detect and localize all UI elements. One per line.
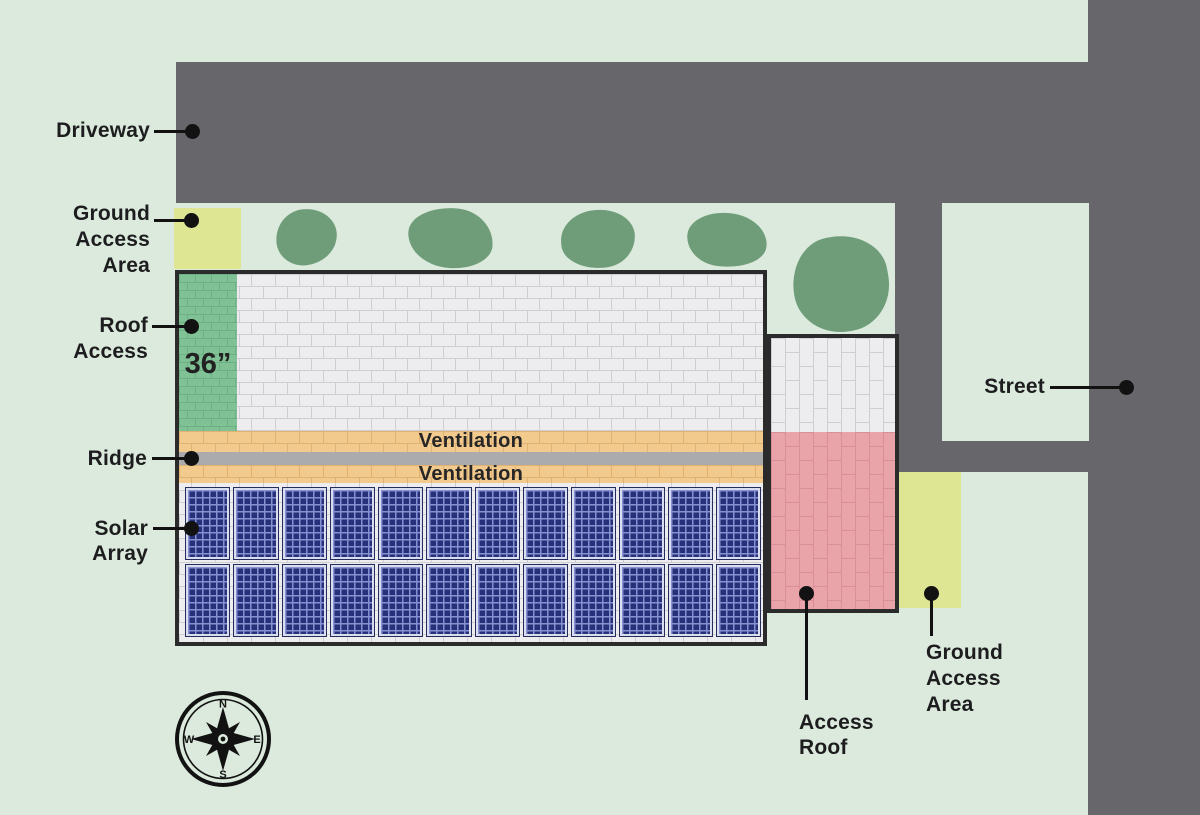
solar-panel-cells [381,567,420,634]
main-roof: 36” Ventilation Ventilation [175,270,767,646]
solar-panel [571,564,616,637]
street-label: Street [845,374,1045,400]
solar-panel [619,487,664,560]
solar-panel [378,564,423,637]
solar-panel-cells [381,490,420,557]
setback-dimension: 36” [179,348,237,381]
solar-panel [523,487,568,560]
label-line: Access [0,339,148,365]
solar-array [185,487,761,637]
label-line: Access [0,227,150,253]
street-surface [1088,0,1200,815]
solar-panel [185,564,230,637]
access-roof-label: Access Roof [799,710,874,760]
solar-panel [475,564,520,637]
solar-panel [668,487,713,560]
compass-e: E [253,734,260,746]
solar-panel [716,564,761,637]
solar-panel-cells [719,490,758,557]
solar-panel-cells [429,567,468,634]
ground-access-left-leader-dot [184,213,199,228]
solar-panel [716,487,761,560]
driveway-leader-dot [185,124,200,139]
solar-panel [330,564,375,637]
label-line: Roof [0,313,148,339]
ventilation-label-upper: Ventilation [179,430,763,452]
street-leader-dot [1119,380,1134,395]
solar-panel [668,564,713,637]
ventilation-label-lower: Ventilation [179,463,763,485]
bush-icon [406,204,496,271]
bush-icon [684,208,770,271]
site-plan: 36” Ventilation Ventilation Driveway Gro… [0,0,1200,815]
label-line: Ground [0,201,150,227]
label-line: Array [0,541,148,566]
ground-access-left-label: Ground Access Area [0,201,150,279]
solar-panel-cells [526,490,565,557]
solar-panel [475,487,520,560]
solar-panel-cells [236,490,275,557]
label-line: Area [926,692,1003,718]
label-line: Access [926,666,1003,692]
label-line: Area [0,253,150,279]
solar-panel [619,564,664,637]
street-median-island [942,203,1089,441]
solar-panel-cells [333,490,372,557]
street-label-text: Street [984,375,1045,398]
bush-icon [559,207,637,270]
driveway-surface [176,62,1200,203]
driveway-label: Driveway [0,118,150,144]
solar-panel-cells [236,567,275,634]
solar-panel-cells [719,567,758,634]
solar-panel-cells [285,490,324,557]
ground-access-right-label: Ground Access Area [926,640,1003,718]
solar-panel-cells [478,490,517,557]
solar-panel [233,564,278,637]
solar-panel [523,564,568,637]
solar-panel-cells [671,567,710,634]
solar-panel-cells [285,567,324,634]
solar-panel [378,487,423,560]
solar-panel-cells [333,567,372,634]
solar-panel [426,564,471,637]
driveway-label-text: Driveway [56,119,150,142]
compass-w: W [184,734,195,746]
solar-panel-cells [429,490,468,557]
compass-rose-icon: N E S W [170,686,276,792]
access-roof-leader-dot [799,586,814,601]
ridge-label-text: Ridge [88,447,147,470]
label-line: Ground [926,640,1003,666]
label-line: Solar [0,516,148,541]
ground-access-right-leader-dot [924,586,939,601]
solar-panel-cells [526,567,565,634]
solar-array-leader-dot [184,521,199,536]
solar-panel [282,487,327,560]
roof-access-leader-dot [184,319,199,334]
compass-n: N [219,699,227,711]
ridge-label: Ridge [0,446,147,472]
bush-icon [785,228,896,339]
solar-panel [571,487,616,560]
solar-panel [426,487,471,560]
solar-panel-cells [671,490,710,557]
access-roof-leader-line [805,594,808,700]
solar-panel-cells [574,490,613,557]
label-line: Access [799,710,874,735]
label-line: Roof [799,735,874,760]
solar-panel-cells [622,490,661,557]
bush-icon [272,205,340,269]
solar-panel-cells [188,567,227,634]
compass-s: S [219,769,226,781]
street-leader-line [1050,386,1127,389]
ridge-leader-dot [184,451,199,466]
solar-panel-cells [622,567,661,634]
solar-panel [233,487,278,560]
solar-panel-cells [574,567,613,634]
solar-panel [330,487,375,560]
solar-panel [282,564,327,637]
solar-panel-cells [478,567,517,634]
roof-access-label: Roof Access [0,313,148,365]
access-roof-pink-area [771,432,895,609]
solar-array-label: Solar Array [0,516,148,566]
